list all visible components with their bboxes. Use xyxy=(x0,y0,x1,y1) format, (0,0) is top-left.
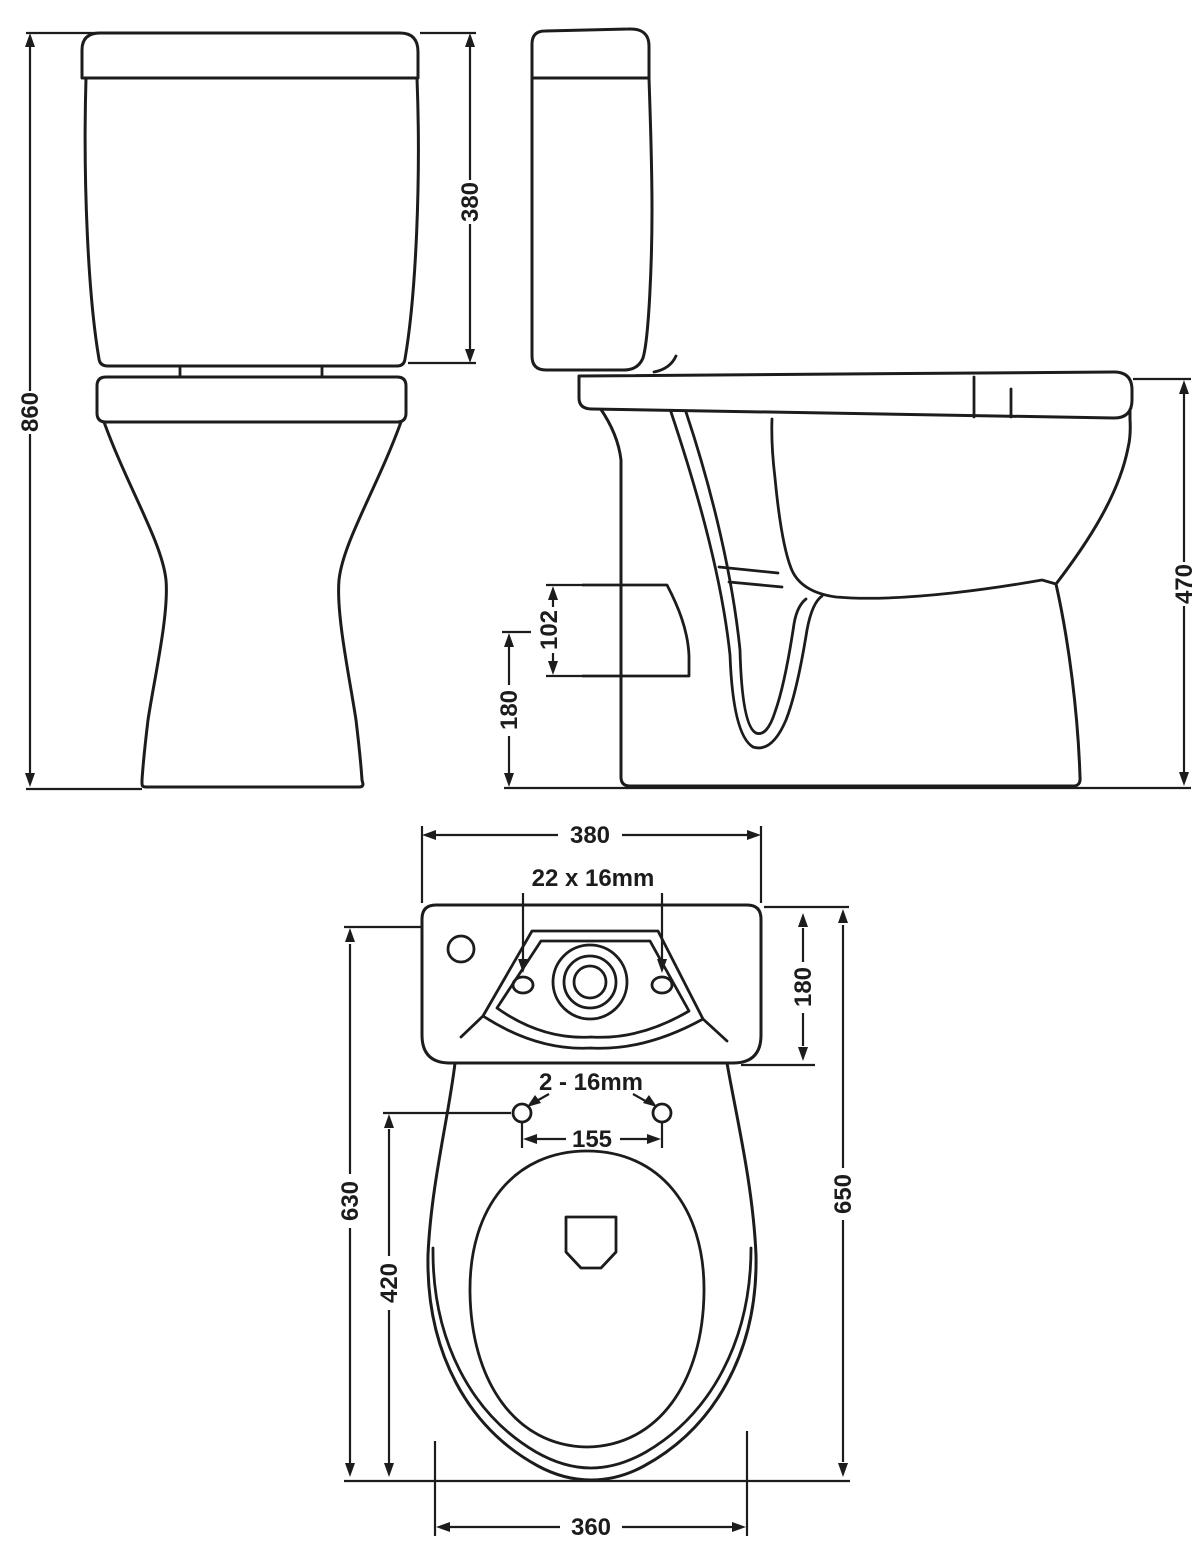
side-toilet-outline xyxy=(504,29,1191,788)
side-seat-band xyxy=(579,372,1132,418)
dim-label-380-top: 380 xyxy=(570,822,610,849)
toilet-technical-drawing: 860 380 xyxy=(0,0,1200,1562)
side-seat-back-curve xyxy=(654,356,676,372)
dim-label-420: 420 xyxy=(376,1263,403,1303)
dim-label-180-top: 180 xyxy=(790,967,817,1007)
note-label-22x16: 22 x 16mm xyxy=(532,865,655,892)
technical-drawing-page: 860 380 xyxy=(0,0,1200,1562)
front-cistern-lid xyxy=(82,33,418,78)
dim-side-seat-height: 470 xyxy=(1133,379,1198,786)
front-seat-band xyxy=(97,377,406,422)
dim-front-cistern-height: 380 xyxy=(408,33,484,363)
side-cistern-lid xyxy=(532,29,649,78)
front-toilet-outline xyxy=(82,33,418,787)
front-view: 860 380 xyxy=(17,33,484,789)
dim-top-overall-650: 650 xyxy=(830,909,857,1477)
top-view: 380 22 x 16mm 180 2 - 16mm xyxy=(337,822,857,1541)
dim-side-outlet-size: 102 xyxy=(536,585,584,676)
top-toilet-outline xyxy=(422,905,761,1480)
front-pedestal xyxy=(104,422,401,787)
front-cistern-body xyxy=(85,78,418,366)
dim-label-155: 155 xyxy=(572,1126,612,1153)
side-view: 470 102 180 xyxy=(496,29,1198,788)
dim-label-630: 630 xyxy=(337,1181,364,1221)
front-hinge-lines xyxy=(180,366,322,377)
dim-label-102: 102 xyxy=(536,610,563,650)
dim-label-180-side: 180 xyxy=(496,690,523,730)
dim-label-860: 860 xyxy=(17,392,44,432)
dim-label-360: 360 xyxy=(571,1514,611,1541)
dim-label-380-front: 380 xyxy=(457,182,484,222)
dim-label-650: 650 xyxy=(830,1174,857,1214)
dim-label-470: 470 xyxy=(1171,564,1198,604)
top-cistern xyxy=(422,905,761,1063)
dim-side-outlet-centre-height: 180 xyxy=(496,632,531,787)
side-cistern-body xyxy=(532,78,652,370)
note-label-2-16: 2 - 16mm xyxy=(539,1069,643,1096)
dim-top-depth-630: 630 xyxy=(337,927,421,1477)
